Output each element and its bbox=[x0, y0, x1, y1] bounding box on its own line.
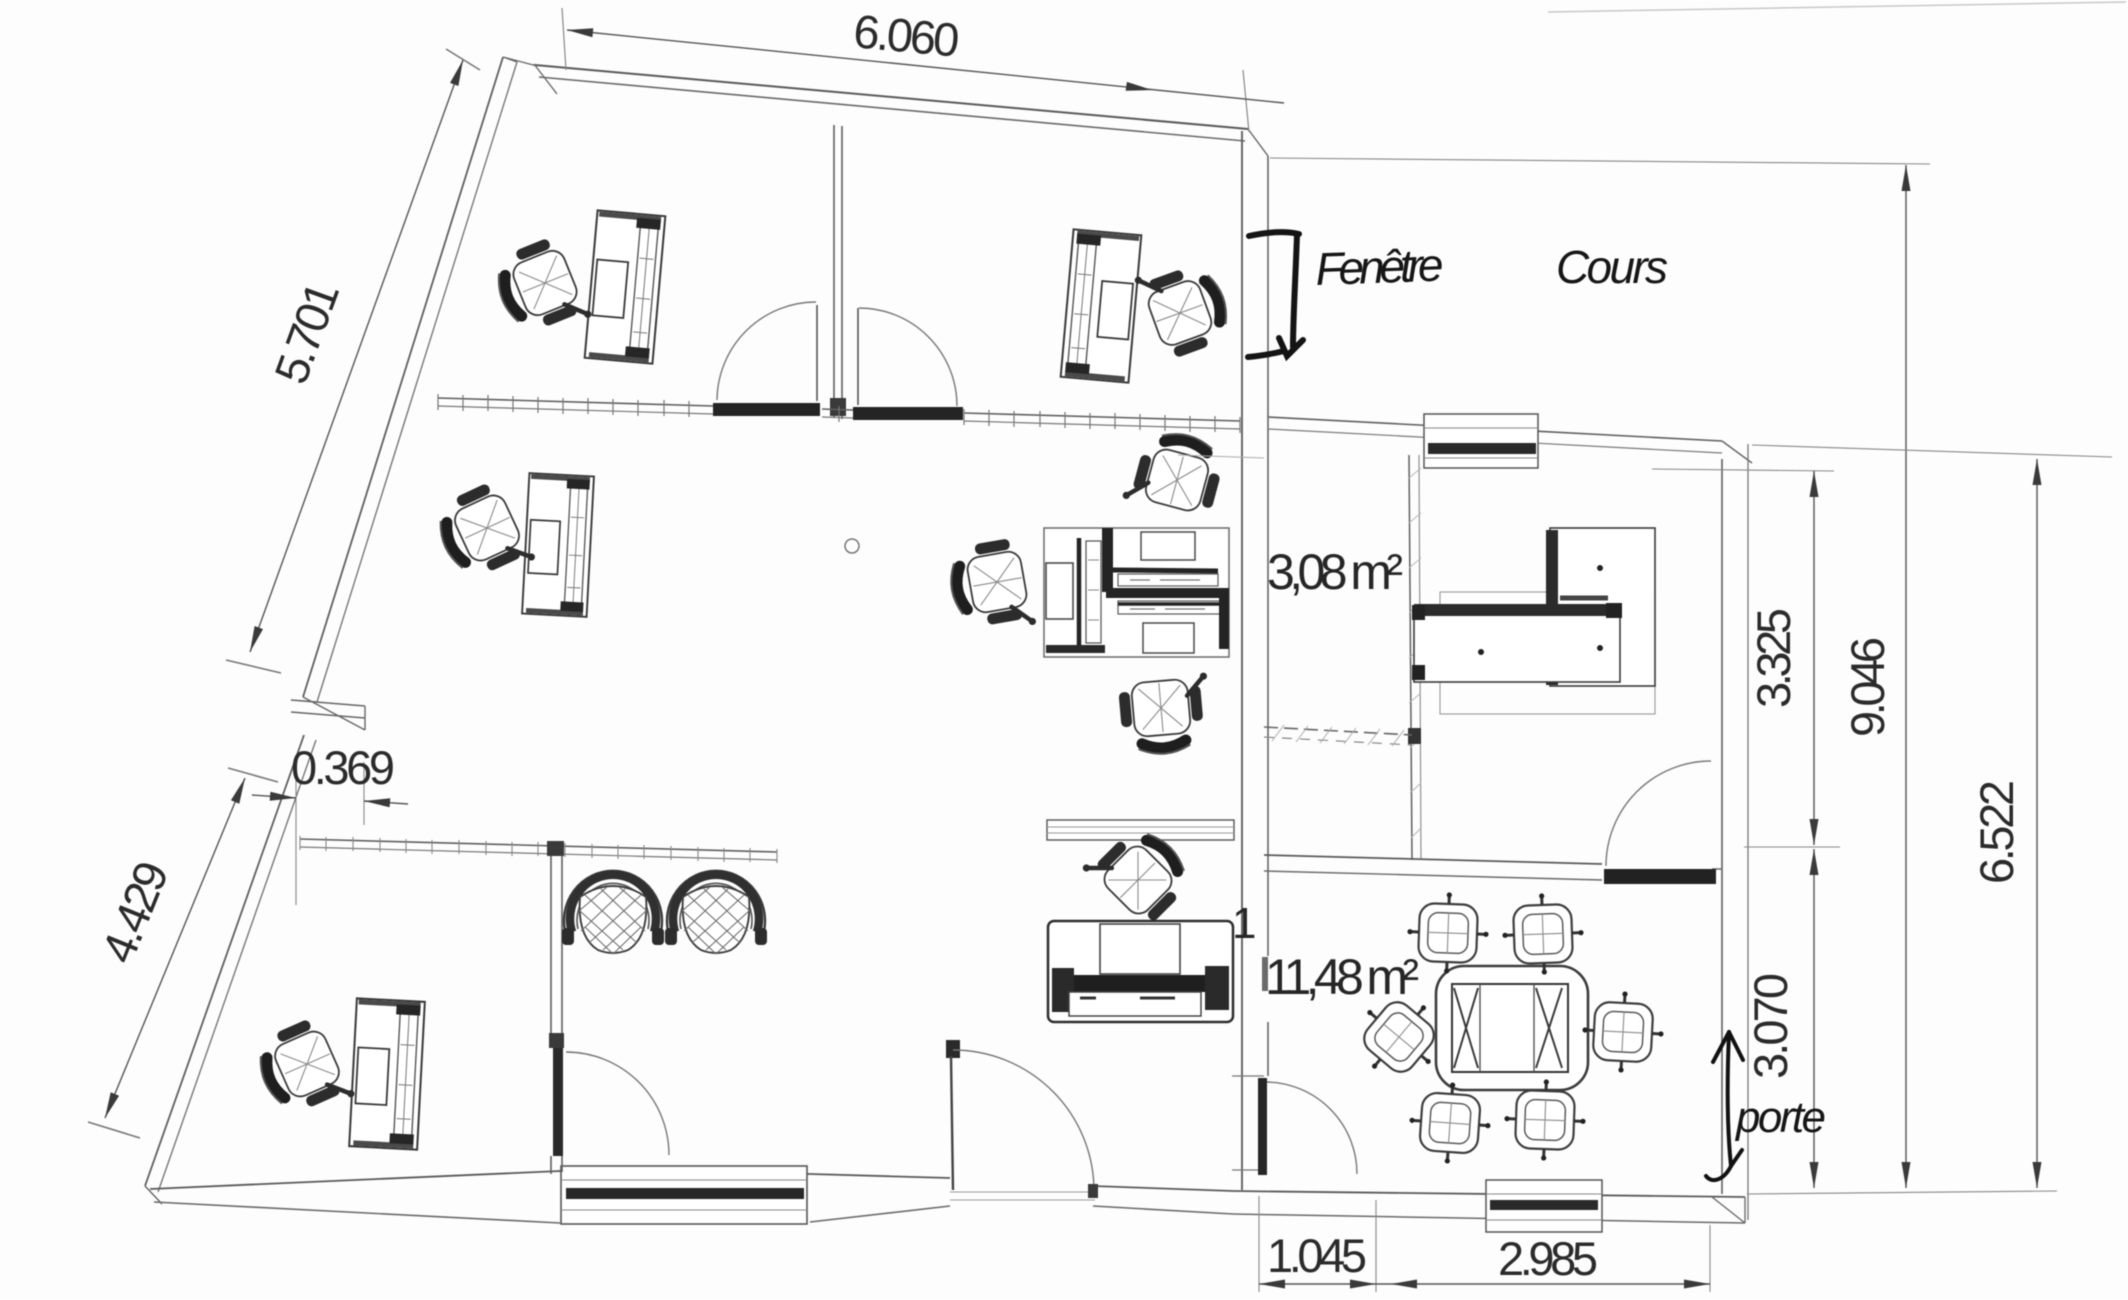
svg-text:11,48 m²: 11,48 m² bbox=[1265, 949, 1419, 1005]
svg-text:3.325: 3.325 bbox=[1747, 608, 1800, 708]
svg-text:1: 1 bbox=[1232, 899, 1256, 948]
svg-text:0.369: 0.369 bbox=[291, 741, 395, 794]
svg-text:6.060: 6.060 bbox=[851, 4, 961, 67]
svg-text:6.522: 6.522 bbox=[1970, 780, 2023, 884]
svg-text:3,08 m²: 3,08 m² bbox=[1267, 544, 1403, 600]
svg-text:Cours: Cours bbox=[1556, 241, 1668, 293]
svg-text:Fenêtre: Fenêtre bbox=[1315, 239, 1445, 295]
svg-text:9.046: 9.046 bbox=[1841, 637, 1894, 737]
svg-text:1.045: 1.045 bbox=[1267, 1229, 1367, 1282]
svg-text:porte: porte bbox=[1734, 1093, 1826, 1142]
svg-text:3.070: 3.070 bbox=[1744, 973, 1797, 1079]
svg-text:2.985: 2.985 bbox=[1498, 1232, 1598, 1285]
